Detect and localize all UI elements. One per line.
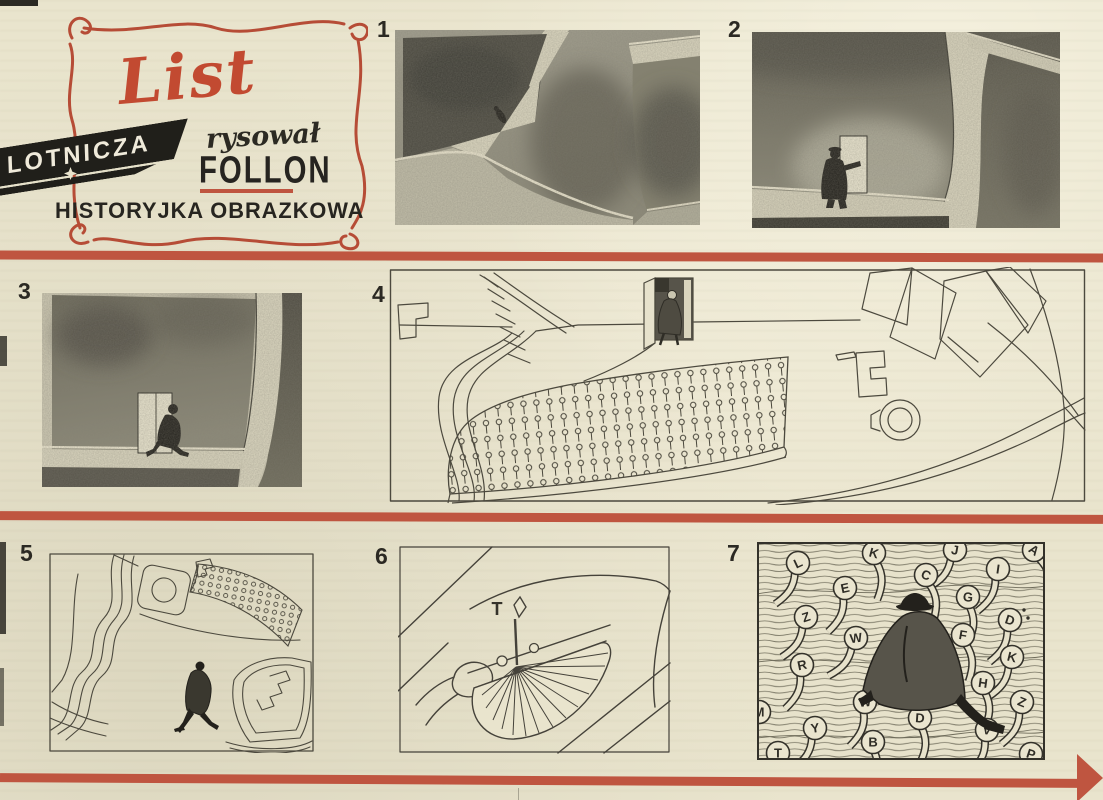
platen-knob <box>880 400 920 440</box>
masthead: List LOTNICZA rysował FOLLON HISTORYJKA … <box>0 0 372 256</box>
paper-sheet <box>862 268 912 325</box>
masthead-title: List <box>115 34 260 119</box>
keyboard-crowd <box>448 357 788 494</box>
paper-sheet <box>940 271 1028 377</box>
svg-text:D: D <box>915 710 925 726</box>
doorway <box>644 278 693 349</box>
key-letter-t: T <box>492 599 503 619</box>
author-underline <box>200 189 293 193</box>
paper-sheet <box>986 267 1046 333</box>
red-divider-middle <box>0 511 1103 524</box>
red-arrow-icon <box>1077 754 1103 800</box>
panel-6-number: 6 <box>375 543 388 570</box>
keyboard-band <box>190 564 302 646</box>
masthead-subtitle: HISTORYJKA OBRAZKOWA <box>55 198 364 224</box>
small-typewriter <box>233 658 311 742</box>
svg-text:G: G <box>962 589 973 605</box>
panel-3-illustration <box>42 293 302 487</box>
typewriter-key: P <box>1020 743 1043 761</box>
red-divider-bottom <box>0 773 1078 788</box>
panel-5-illustration <box>48 552 315 753</box>
fold-mark <box>518 788 519 800</box>
scan-edge-mark <box>0 0 38 6</box>
key-lever <box>515 619 517 665</box>
panel-1-illustration <box>395 30 700 225</box>
scan-edge-mark <box>0 336 7 366</box>
carriage-bracket <box>856 351 887 397</box>
panel-3-number: 3 <box>18 278 31 305</box>
screw-outline <box>480 273 574 333</box>
scan-edge-mark <box>0 542 6 634</box>
panel-4-number: 4 <box>372 281 385 308</box>
panel-6-illustration: T <box>398 545 672 755</box>
magazine-page: List LOTNICZA rysował FOLLON HISTORYJKA … <box>0 0 1103 800</box>
type-bar-fan <box>472 643 610 739</box>
panel-7-illustration: L K J A E C I Z G D W F R K H M Z W Y D … <box>757 542 1045 760</box>
panel-2-illustration <box>752 32 1060 228</box>
panel-4-illustration <box>388 267 1088 505</box>
scan-edge-mark <box>0 668 4 726</box>
screw-coil <box>484 277 530 363</box>
panel-7-number: 7 <box>727 540 740 567</box>
svg-text:B: B <box>868 735 877 750</box>
panel-5-number: 5 <box>20 540 33 567</box>
ribbon-spool <box>136 563 192 616</box>
stepped-keys <box>257 671 290 710</box>
masthead-author: FOLLON <box>199 149 332 193</box>
panel-1-number: 1 <box>377 16 390 43</box>
typewriter-key: T <box>767 742 790 761</box>
svg-text:T: T <box>774 746 782 761</box>
panel-2-number: 2 <box>728 16 741 43</box>
walking-man-figure <box>174 662 219 734</box>
